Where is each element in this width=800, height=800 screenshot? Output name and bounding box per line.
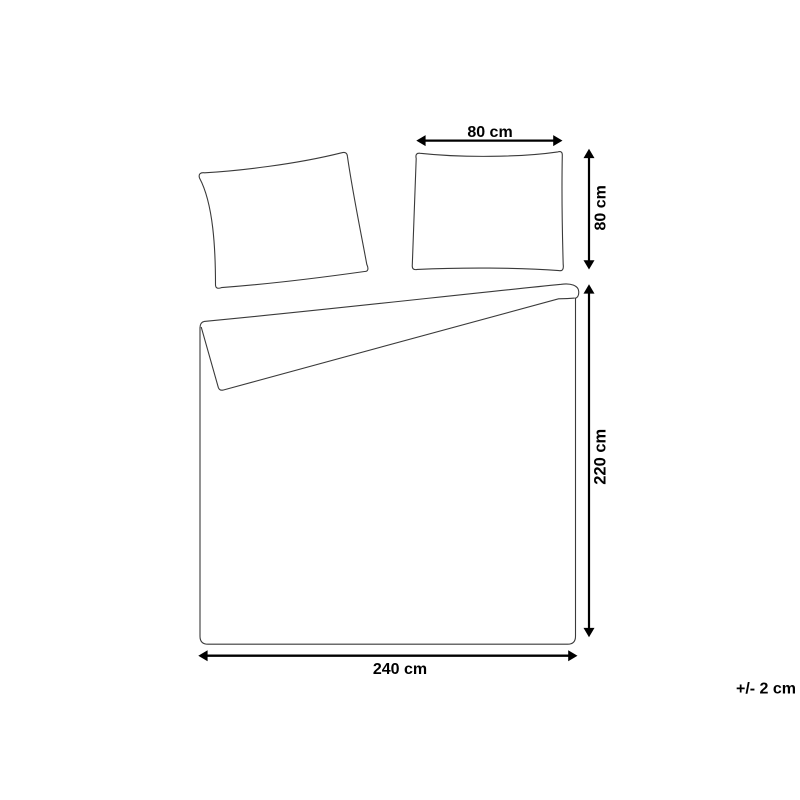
svg-text:240 cm: 240 cm [373,661,427,678]
svg-text:+/- 2 cm: +/- 2 cm [736,680,796,697]
svg-text:220 cm: 220 cm [592,429,610,485]
svg-text:80 cm: 80 cm [467,124,512,141]
svg-text:80 cm: 80 cm [593,185,610,230]
